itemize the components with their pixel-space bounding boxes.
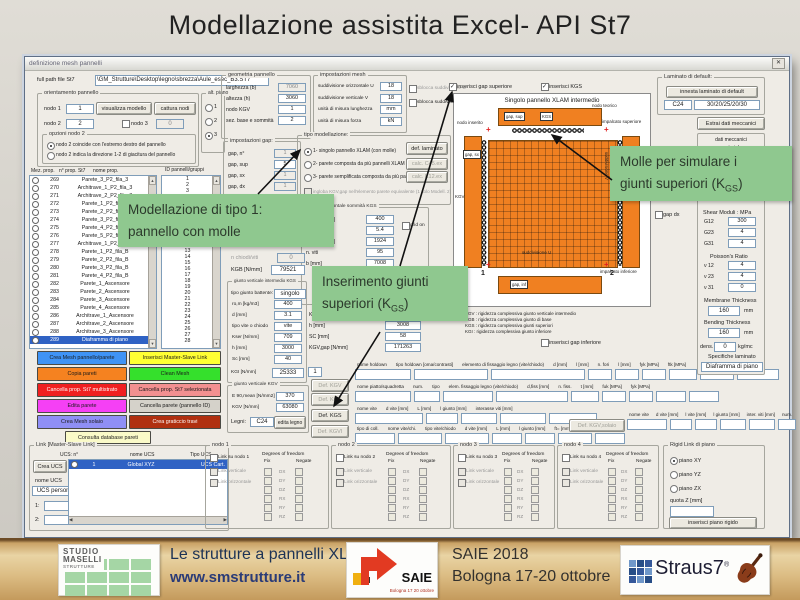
crea-ucs-button[interactable]: Crea UCS: [33, 460, 67, 473]
kgi-label: KGI [N/mm]: [231, 370, 256, 375]
cancella-selezionata-button[interactable]: Cancella prop. St7 selezionata: [129, 383, 221, 397]
inserisci-kgs-checkbox[interactable]: [541, 83, 549, 91]
negate-checkbox[interactable]: [635, 486, 643, 494]
master-slave-button[interactable]: Inserisci Master-Slave Link: [129, 351, 221, 365]
link-orizzontale-checkbox[interactable]: [336, 479, 344, 487]
table-row[interactable]: 269 Parete_3_P2_fila_3: [30, 176, 149, 184]
input-field[interactable]: [500, 413, 546, 424]
row-radio[interactable]: [32, 313, 39, 320]
input-field[interactable]: 40: [274, 355, 302, 364]
close-icon[interactable]: ✕: [772, 58, 785, 69]
input-field[interactable]: [615, 369, 639, 380]
row-radio[interactable]: [32, 177, 39, 184]
field-label: t [mm]: [581, 384, 594, 389]
nodo2-option1-radio[interactable]: [47, 142, 55, 150]
dof-negate-label: Negate: [420, 459, 435, 464]
negate-checkbox[interactable]: [295, 477, 303, 485]
straus7-pixel-icon: [629, 560, 652, 583]
input-field[interactable]: 3008: [385, 321, 421, 330]
input-field[interactable]: 95: [366, 248, 394, 257]
bending-input[interactable]: 160: [708, 328, 740, 338]
link-verticale-label: Link verticale: [570, 469, 598, 474]
callout-line: pannello con molle: [128, 221, 324, 243]
callout-line: Inserimento giunti: [322, 271, 458, 293]
input-field[interactable]: 171263: [385, 343, 421, 352]
table-row[interactable]: 287 Architrave_2_Ascensore: [30, 320, 149, 328]
prop-number: 271: [41, 193, 59, 199]
input-field[interactable]: [749, 419, 775, 430]
fix-checkbox[interactable]: [388, 477, 396, 485]
fastener-row2-labels: nome piatto/squadrettanum.tipoelem. fiss…: [357, 384, 650, 389]
row-radio[interactable]: [32, 201, 39, 208]
input-field[interactable]: [720, 419, 746, 430]
negate-checkbox[interactable]: [635, 468, 643, 476]
input-field[interactable]: 370: [276, 392, 304, 401]
fix-checkbox[interactable]: [504, 468, 512, 476]
fix-checkbox[interactable]: [264, 504, 272, 512]
negate-checkbox[interactable]: [531, 513, 539, 521]
row-radio[interactable]: [71, 461, 78, 468]
innesta-laminato-button[interactable]: innesta laminato di default: [666, 86, 758, 98]
negate-checkbox[interactable]: [295, 513, 303, 521]
row-radio[interactable]: [32, 305, 39, 312]
clean-mesh-button[interactable]: Clean Mesh: [129, 367, 221, 381]
calc-k12-button[interactable]: calc. K12.ex: [406, 171, 448, 183]
input-field[interactable]: 58: [385, 332, 421, 341]
link-orizzontale-checkbox[interactable]: [458, 479, 466, 487]
row-radio[interactable]: [32, 321, 39, 328]
tipo-giunto-input[interactable]: singolo: [274, 289, 306, 299]
link-nodo2-checkbox[interactable]: [336, 454, 344, 462]
input-field[interactable]: [778, 419, 796, 430]
tipo1-radio[interactable]: [304, 148, 312, 156]
input-field[interactable]: 3000: [274, 344, 302, 353]
input-field[interactable]: [689, 391, 719, 402]
cattura-nodi-button[interactable]: cattura nodi: [154, 102, 196, 115]
input-field[interactable]: [426, 413, 458, 424]
group-kgv: giunto verticale KGV E 90,mean [N/mm2]37…: [227, 385, 309, 433]
def-kgv-solaio-button[interactable]: Def. KGV,solaio: [569, 419, 625, 432]
negate-checkbox[interactable]: [635, 477, 643, 485]
input-field[interactable]: 63080: [276, 403, 304, 412]
field-label: nome vite/chi.: [388, 426, 416, 431]
input-field[interactable]: [602, 391, 626, 402]
group-title: impostazioni gap:: [228, 138, 275, 144]
field-label: Kser [N/mm]: [232, 335, 259, 340]
dof-label: DX: [403, 469, 412, 474]
row-radio[interactable]: [32, 289, 39, 296]
gap-sx-tag: gap, sx: [463, 150, 481, 159]
field-label: nome holdown: [357, 362, 387, 367]
fastener-row3-labels: nome vited vite [mm]L [mm]l giunto [mm]i…: [357, 406, 513, 411]
membrane-input[interactable]: 160: [708, 306, 740, 316]
spring-column-left: [481, 140, 487, 266]
input-field[interactable]: 5.4: [366, 226, 394, 235]
tipo3-radio[interactable]: [304, 174, 312, 182]
link-nodo1-checkbox[interactable]: [210, 454, 218, 462]
input-field[interactable]: 4: [728, 261, 756, 270]
input-field[interactable]: 1: [274, 171, 296, 180]
row-radio[interactable]: [32, 241, 39, 248]
input-field[interactable]: [492, 433, 522, 444]
row-radio[interactable]: [32, 225, 39, 232]
nodo2-option2-radio[interactable]: [47, 152, 55, 160]
nome-ucs-label: nome UCS: [35, 478, 62, 484]
negate-checkbox[interactable]: [635, 495, 643, 503]
kgv-rows: E 90,mean [N/mm2]370KGV [N/mm]63080: [230, 391, 306, 413]
input-field[interactable]: 3060: [278, 94, 306, 103]
node-marker: +: [486, 262, 491, 268]
input-field[interactable]: 4: [728, 272, 756, 281]
dof-title: Degrees of freedom: [262, 452, 304, 457]
input-field[interactable]: [414, 391, 440, 402]
table-row[interactable]: 278 Parete_1_P2_fila_B: [30, 248, 149, 256]
tipo-giunto-label: tipo giunto battente:: [231, 291, 273, 296]
row-radio[interactable]: [32, 185, 39, 192]
sblocca-u-checkbox[interactable]: [409, 85, 417, 93]
fix-checkbox[interactable]: [504, 495, 512, 503]
prop-number: 282: [41, 281, 59, 287]
ucs-list[interactable]: 1 Global XYZ UCS Cart. ◀▶: [68, 459, 228, 525]
legno-input[interactable]: C24: [250, 417, 274, 427]
input-field[interactable]: 5: [274, 160, 296, 169]
table-row[interactable]: 288 Architrave_3_Ascensore: [30, 328, 149, 336]
input-field[interactable]: [642, 369, 666, 380]
laminato-c24-input[interactable]: C24: [664, 100, 692, 110]
input-field[interactable]: [656, 391, 686, 402]
nodo-teorico-label: nodo teorico: [592, 103, 617, 108]
negate-checkbox[interactable]: [419, 504, 427, 512]
specifiche-input[interactable]: Diaframma di piano: [701, 362, 763, 372]
fix-checkbox[interactable]: [264, 468, 272, 476]
negate-checkbox[interactable]: [531, 504, 539, 512]
field-label: tipo vite/chiodo: [425, 426, 456, 431]
fix-checkbox[interactable]: [608, 504, 616, 512]
negate-checkbox[interactable]: [531, 477, 539, 485]
negate-checkbox[interactable]: [295, 468, 303, 476]
grid-on-checkbox[interactable]: [402, 222, 410, 230]
nodo1-label: nodo 1: [44, 106, 61, 112]
negate-checkbox[interactable]: [635, 504, 643, 512]
input-field[interactable]: 2: [278, 116, 306, 125]
prop-name: Parete_2_P2_fila_B: [61, 257, 149, 263]
estrai-dati-button[interactable]: Estrai dati meccanici: [697, 117, 765, 130]
field-label: d [mm]: [553, 362, 567, 367]
group-title: orientamento pannello: [42, 90, 100, 96]
fix-checkbox[interactable]: [504, 513, 512, 521]
input-field[interactable]: 4: [728, 239, 756, 248]
input-field[interactable]: [627, 419, 667, 430]
fastener-row4-fields: [355, 433, 625, 444]
fix-checkbox[interactable]: [264, 513, 272, 521]
fix-checkbox[interactable]: [504, 486, 512, 494]
gap-dx-checkbox[interactable]: [655, 211, 663, 219]
fix-checkbox[interactable]: [264, 495, 272, 503]
input-field[interactable]: mm: [380, 105, 402, 114]
h-scrollbar[interactable]: ◀▶: [69, 516, 227, 524]
quota-z-input[interactable]: [670, 506, 714, 517]
fix-checkbox[interactable]: [504, 504, 512, 512]
negate-checkbox[interactable]: [419, 495, 427, 503]
negate-checkbox[interactable]: [295, 495, 303, 503]
kgi-n-input[interactable]: 1: [308, 367, 322, 377]
group-nodo-3: nodo 3 Link su nodo 3 Link verticale Lin…: [453, 445, 555, 529]
bending-label: Bending Thickness: [704, 320, 750, 326]
fix-checkbox[interactable]: [608, 495, 616, 503]
prop-name: Architrave_1_P2_fila_3: [61, 185, 149, 191]
fix-checkbox[interactable]: [388, 513, 396, 521]
dens-input[interactable]: 0: [714, 342, 736, 352]
table-row[interactable]: 282 Parete_1_Ascensore: [30, 280, 149, 288]
field-label: inter. viti [mm]: [747, 412, 775, 417]
dof-label: RZ: [517, 514, 526, 519]
input-field[interactable]: [355, 433, 395, 444]
fix-checkbox[interactable]: [608, 468, 616, 476]
footer-tagline: Le strutture a pannelli XLAM: [170, 546, 372, 564]
field-label: nome piatto/squadretta: [357, 384, 404, 389]
def-kgvi-button[interactable]: Def. KGVI: [311, 425, 349, 438]
negate-checkbox[interactable]: [419, 486, 427, 494]
group-title: impostazioni mesh: [318, 72, 368, 78]
input-field[interactable]: [398, 433, 442, 444]
tipo1-label: 1- singolo pannello XLAM (con molle): [313, 148, 396, 154]
fix-checkbox[interactable]: [608, 486, 616, 494]
piano-zx-radio[interactable]: [670, 485, 678, 493]
row-radio[interactable]: [32, 281, 39, 288]
field-label: L [mm]: [496, 426, 510, 431]
window-titlebar[interactable]: definizione mesh pannelli ✕: [25, 57, 789, 71]
dof-grid: DXDYDZRXRYRZ: [264, 467, 303, 521]
link-verticale-checkbox[interactable]: [336, 468, 344, 476]
nodo2-input[interactable]: 2: [66, 119, 94, 129]
footer-url[interactable]: www.smstrutture.it: [170, 569, 305, 586]
inserisci-gap-sup-label: inserisci gap superiore: [457, 84, 512, 90]
kgb-input[interactable]: 79521: [271, 265, 305, 275]
input-field[interactable]: 400: [366, 215, 394, 224]
negate-checkbox[interactable]: [419, 477, 427, 485]
inserisci-gap-sup-checkbox[interactable]: [449, 83, 457, 91]
group-title: nodo 3: [458, 442, 479, 448]
input-field[interactable]: 1: [274, 182, 296, 191]
input-field[interactable]: [670, 419, 692, 430]
inserisci-piano-button[interactable]: inserisci piano rigido: [669, 517, 757, 529]
table-row[interactable]: 284 Parete_3_Ascensore: [30, 296, 149, 304]
dof-label: RX: [517, 496, 526, 501]
row-radio[interactable]: [32, 329, 39, 336]
alt-piano-2-radio[interactable]: [205, 118, 213, 126]
field-label: suddivisione orizzontale U: [318, 84, 374, 89]
piano-xy-radio[interactable]: [670, 457, 678, 465]
tipo2-radio[interactable]: [304, 161, 312, 169]
link-verticale-checkbox[interactable]: [210, 468, 218, 476]
field-label: sez. base e sommità: [226, 118, 274, 124]
input-field[interactable]: kN: [380, 117, 402, 126]
link-verticale-label: Link verticale: [344, 469, 372, 474]
tipo2-label: 2- parete composta da più pannelli XLAM: [313, 161, 405, 167]
row-radio[interactable]: [32, 257, 39, 264]
input-field[interactable]: 400: [274, 300, 302, 309]
input-field[interactable]: 3.1: [274, 311, 302, 320]
kgs-intermedio-rows: ro,m [kg/m3]400d [mm]3.1tipo vite o chio…: [230, 299, 304, 365]
cancella-parete-id-button[interactable]: Cancella parete (pannello ID): [129, 399, 221, 413]
fix-checkbox[interactable]: [504, 477, 512, 485]
input-field[interactable]: 0: [728, 283, 756, 292]
input-field[interactable]: 18: [380, 82, 402, 91]
field-label: nome vite: [357, 406, 377, 411]
negate-checkbox[interactable]: [419, 513, 427, 521]
nodo3-checkbox[interactable]: [122, 120, 130, 128]
page-title: Modellazione assistita Excel- API St7: [0, 10, 800, 41]
kgi-input[interactable]: 25333: [272, 368, 304, 378]
field-label: l giunto [mm]: [713, 412, 739, 417]
field-label: ν 12: [704, 263, 714, 269]
input-field[interactable]: 709: [274, 333, 302, 342]
input-field[interactable]: 1: [278, 105, 306, 114]
row-radio[interactable]: [32, 209, 39, 216]
alt-piano-3-radio[interactable]: [205, 132, 213, 140]
dens-label: dens.: [700, 344, 713, 350]
table-row[interactable]: 285 Parete_4_Ascensore: [30, 304, 149, 312]
negate-checkbox[interactable]: [531, 495, 539, 503]
def-kgv-button[interactable]: Def. KGV: [311, 379, 349, 392]
fix-checkbox[interactable]: [264, 477, 272, 485]
row-radio[interactable]: [32, 193, 39, 200]
def-laminato-button[interactable]: def. laminato: [406, 142, 448, 155]
link-nodo4-checkbox[interactable]: [562, 454, 570, 462]
dof-negate-label: Negate: [636, 459, 651, 464]
row-radio[interactable]: [32, 249, 39, 256]
col-header-nprop: n° prop. St7: [59, 168, 85, 174]
link-orizzontale-checkbox[interactable]: [210, 479, 218, 487]
row-radio[interactable]: [32, 233, 39, 240]
edita-legno-button[interactable]: edita legno: [274, 416, 306, 429]
negate-checkbox[interactable]: [419, 468, 427, 476]
input-field[interactable]: [355, 369, 411, 380]
list-item[interactable]: 28: [162, 338, 213, 344]
def-kgs-button-1[interactable]: Def. KGS: [311, 393, 349, 406]
fix-checkbox[interactable]: [264, 486, 272, 494]
input-field[interactable]: [443, 391, 493, 402]
laminato-layers-input[interactable]: 30/20/25/20/30: [694, 100, 760, 110]
fix-checkbox[interactable]: [388, 486, 396, 494]
calc-c45-button[interactable]: calc. C45.ex: [406, 158, 448, 170]
input-field[interactable]: [595, 433, 625, 444]
def-kgs-button-2[interactable]: Def. KGS: [311, 409, 349, 422]
negate-checkbox[interactable]: [295, 504, 303, 512]
input-field[interactable]: [355, 413, 423, 424]
input-field[interactable]: [525, 433, 555, 444]
link-nodo-label: Link su nodo 4: [570, 455, 601, 460]
alt-piano-1-radio[interactable]: [205, 104, 213, 112]
input-field[interactable]: 7060: [278, 83, 306, 92]
field-label: fyk [MPa]: [631, 384, 650, 389]
field-label: elemento di fissaggio legno (vite/chiodo…: [462, 362, 544, 367]
saie-sub: Bologna 17 20 ottobre: [390, 588, 434, 593]
fix-checkbox[interactable]: [608, 513, 616, 521]
negate-checkbox[interactable]: [295, 486, 303, 494]
input-field[interactable]: [491, 369, 585, 380]
row-radio[interactable]: [32, 337, 39, 344]
visualizza-modello-button[interactable]: visualizza modello: [96, 102, 152, 115]
negate-checkbox[interactable]: [531, 468, 539, 476]
crea-mesh-button[interactable]: Crea Mesh pannello/parete: [37, 351, 127, 365]
input-field[interactable]: 1924: [366, 237, 394, 246]
table-row[interactable]: 270 Architrave_1_P2_fila_3: [30, 184, 149, 192]
prop-number: 272: [41, 201, 59, 207]
input-field[interactable]: vite: [274, 322, 302, 331]
negate-checkbox[interactable]: [531, 486, 539, 494]
table-row[interactable]: 283 Parete_2_Ascensore: [30, 288, 149, 296]
spring-row-top: [512, 127, 584, 134]
input-field[interactable]: [629, 391, 653, 402]
input-field[interactable]: [461, 413, 497, 424]
inserisci-gap-inf-checkbox[interactable]: [541, 339, 549, 347]
table-row[interactable]: 280 Parete_3_P2_fila_B: [30, 264, 149, 272]
input-field[interactable]: 18: [380, 94, 402, 103]
table-row[interactable]: 289 Diaframma di piano: [30, 336, 149, 344]
cancella-multistrato-button[interactable]: Cancella prop. St7 multistrato: [37, 383, 127, 397]
dati-meccanici-title: dati meccanici: [698, 137, 764, 143]
input-field[interactable]: [496, 391, 568, 402]
copia-pareti-button[interactable]: Copia pareti: [37, 367, 127, 381]
fix-checkbox[interactable]: [388, 504, 396, 512]
nodo3-input[interactable]: 0: [156, 119, 184, 129]
input-field[interactable]: [669, 369, 697, 380]
input-field[interactable]: 300: [728, 217, 756, 226]
nodo1-input[interactable]: 1: [66, 104, 94, 114]
link-nodo3-checkbox[interactable]: [458, 454, 466, 462]
input-field[interactable]: [588, 369, 612, 380]
piano-yz-radio[interactable]: [670, 471, 678, 479]
prop-name: Parete_1_Ascensore: [61, 281, 149, 287]
sblocca-v-checkbox[interactable]: [409, 99, 417, 107]
negate-checkbox[interactable]: [635, 513, 643, 521]
link-verticale-checkbox[interactable]: [458, 468, 466, 476]
input-field[interactable]: [355, 391, 411, 402]
input-field[interactable]: [695, 419, 717, 430]
footer-event: SAIE 2018: [452, 546, 529, 564]
prop-name: Parete_3_Ascensore: [61, 297, 149, 303]
filepath-label: full path file St7: [37, 77, 75, 83]
table-row[interactable]: 281 Parete_4_P2_fila_B: [30, 272, 149, 280]
table-row[interactable]: 279 Parete_2_P2_fila_B: [30, 256, 149, 264]
crea-mesh-solaio-button[interactable]: Crea Mesh solaio: [37, 415, 127, 429]
chiodi-input[interactable]: 0: [277, 253, 305, 263]
ucs-row-selected[interactable]: 1 Global XYZ UCS Cart.: [69, 460, 227, 469]
edita-parete-button[interactable]: Edita parete: [37, 399, 127, 413]
fix-checkbox[interactable]: [608, 477, 616, 485]
gap-dx-label: gap dx: [663, 212, 680, 218]
crea-graticcio-button[interactable]: Crea graticcio travi: [129, 415, 221, 429]
row-radio[interactable]: [32, 217, 39, 224]
fix-checkbox[interactable]: [388, 495, 396, 503]
dof-title: Degrees of freedom: [606, 452, 648, 457]
link-verticale-checkbox[interactable]: [562, 468, 570, 476]
fix-checkbox[interactable]: [388, 468, 396, 476]
table-row[interactable]: 286 Architrave_1_Ascensore: [30, 312, 149, 320]
callout-molle: Molle per simulare i giunti superiori (K…: [610, 146, 792, 201]
input-field[interactable]: [571, 391, 599, 402]
dof-grid: DXDYDZRXRYRZ: [388, 467, 427, 521]
row-radio[interactable]: [32, 273, 39, 280]
dof-label: DY: [621, 478, 630, 483]
input-field[interactable]: [414, 369, 488, 380]
row-radio[interactable]: [32, 265, 39, 272]
input-field[interactable]: 1: [274, 149, 296, 158]
input-field[interactable]: 4: [728, 228, 756, 237]
link-orizzontale-checkbox[interactable]: [562, 479, 570, 487]
row-radio[interactable]: [32, 297, 39, 304]
